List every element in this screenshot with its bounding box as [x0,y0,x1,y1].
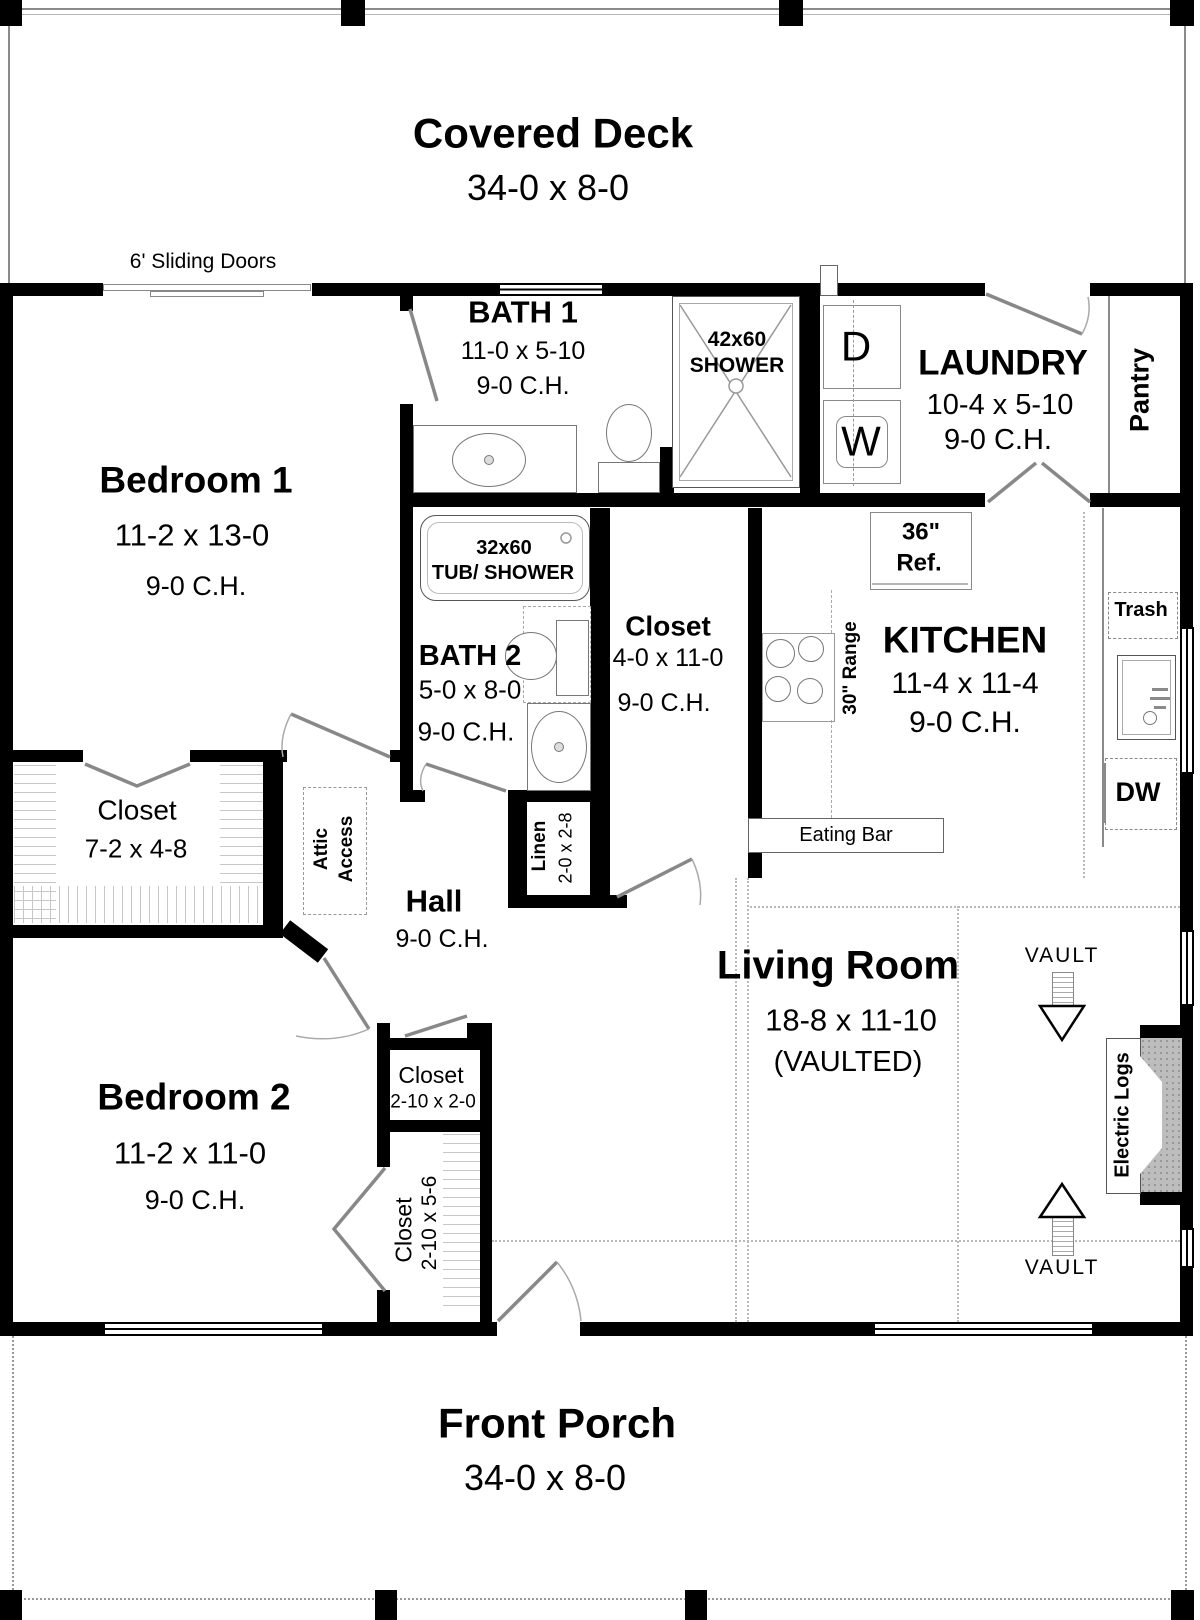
closet-tall-dims: 2-10 x 5-6 [418,1176,442,1271]
wall-bottom [1090,1322,1193,1336]
bath2-ceiling: 9-0 C.H. [418,717,515,746]
sink-drain [484,455,494,465]
wall-closet-small-top [388,1038,480,1050]
wall-linen-bottom [508,895,627,908]
deck-post [779,0,803,26]
porch-dims: 34-0 x 8-0 [464,1458,626,1498]
pantry-name: Pantry [1125,348,1156,432]
laundry-name: LAUNDRY [918,343,1088,382]
deck-post [1170,0,1194,26]
dishwasher-edge [1103,763,1106,823]
hall-closet-ceiling: 9-0 C.H. [617,689,710,717]
wall-living-left [480,1023,492,1322]
vault-arrow-head-up [1040,1184,1084,1217]
wall-linen-left [508,790,527,908]
vault-line [1083,512,1085,878]
wall-closet-divider [388,1120,480,1132]
toilet-bowl [606,404,652,462]
bedroom2-ceiling: 9-0 C.H. [145,1185,246,1215]
window [1180,930,1194,1006]
faucet [1152,688,1168,691]
laundry-bifold-door [988,463,1036,502]
porch-edge [12,1336,14,1598]
closet-tall-name: Closet [391,1197,418,1262]
door-arc [296,1029,369,1039]
shower-label: SHOWER [690,354,785,378]
bath2-dims: 5-0 x 8-0 [419,675,522,704]
bath1-door-leaf [410,309,437,401]
wall-bed1-bottom [190,750,287,762]
dryer-label: D [841,322,871,369]
wall-closet-bottom [0,925,283,938]
wall-linen-top [508,790,590,802]
wall-bed1-bottom [390,750,413,762]
deck-edge-top [8,8,1186,10]
angled-wall [285,927,323,956]
deck-edge-right [1184,8,1186,283]
deck-edge-top-inner [8,14,1186,15]
counter-edge [831,590,832,633]
toilet-tank [598,462,660,493]
wall-top [600,283,985,296]
sliding-doors-label: 6' Sliding Doors [130,250,276,274]
wall-corner [467,1023,492,1038]
bedroom2-name: Bedroom 2 [97,1076,290,1117]
deck-title: Covered Deck [413,109,693,156]
wall-bottom [320,1322,497,1336]
wall-top [0,283,103,296]
wall-bath2-closet [590,508,610,908]
porch-edge [13,1598,1186,1600]
dishwasher-label: DW [1116,777,1161,807]
vault-arrow-head-down [1040,1006,1084,1040]
door-arc [557,1262,581,1321]
wall-bath2-stub [400,790,425,802]
bedroom2-dims: 11-2 x 11-0 [114,1137,266,1172]
refrigerator-line [872,583,968,585]
deck-post [341,0,365,26]
closet-small-door-leaf [405,1016,467,1036]
bedroom1-door-leaf [291,714,390,757]
laundry-bifold-door [1042,463,1090,502]
deck-dims: 34-0 x 8-0 [467,168,629,208]
dryer-vent [820,265,838,296]
burner [765,676,791,702]
sliding-door-panel [150,291,264,297]
tub-size: 32x60 [476,537,532,559]
wall-bath-divider [400,493,985,507]
living-name: Living Room [717,944,959,989]
counter-edge [831,720,832,818]
closet-tall-doors [334,1168,385,1291]
floor-plan: Covered Deck 34-0 x 8-0 6' Sliding Doors… [0,0,1200,1620]
kitchen-dims: 11-4 x 11-4 [891,667,1038,701]
eating-bar-label: Eating Bar [799,824,892,846]
range-label: 30" Range [840,621,862,715]
hall-closet-door-leaf [617,859,692,897]
laundry-dims: 10-4 x 5-10 [927,389,1074,421]
hall-closet-dims: 4-0 x 11-0 [613,644,724,672]
pantry-divider [1108,296,1110,493]
trash-label: Trash [1114,599,1167,621]
fridge-size: 36" [902,520,940,547]
bedroom1-name: Bedroom 1 [99,459,292,500]
hall-closet-name: Closet [625,610,711,641]
porch-post [375,1590,397,1620]
wall-bottom [0,1322,103,1336]
wall-bed1-right [400,296,413,311]
window [1180,627,1194,774]
deck-post [0,0,22,26]
laundry-door-leaf [986,294,1082,334]
bath1-dims: 11-0 x 5-10 [461,337,586,365]
wall-bottom [580,1322,873,1336]
vault-label-bottom: VAULT [1025,1256,1100,1280]
burner [797,678,823,704]
bedroom1-ceiling: 9-0 C.H. [146,571,247,601]
shower-size: 42x60 [708,328,766,352]
linen-name: Linen [529,821,551,872]
laundry-ceiling: 9-0 C.H. [944,424,1052,456]
burner [766,639,795,668]
closet-shelf-hatch [443,1134,480,1310]
bedroom2-door-leaf [324,958,369,1029]
living-note: (VAULTED) [774,1046,923,1078]
faucet [1150,697,1170,700]
living-dims: 18-8 x 11-10 [765,1004,937,1039]
bath1-ceiling: 9-0 C.H. [476,372,569,400]
wall-bed1-bottom [0,750,83,762]
burner [798,636,824,662]
closet-double-doors [85,764,190,786]
kitchen-ceiling: 9-0 C.H. [909,706,1021,740]
bed1-closet-dims: 7-2 x 4-8 [85,834,188,863]
bedroom1-dims: 11-2 x 13-0 [115,519,270,554]
door-arc [692,859,701,905]
kitchen-name: KITCHEN [883,619,1047,660]
vault-line [492,1240,1180,1242]
linen-dims: 2-0 x 2-8 [556,812,577,883]
closet-shelf-hatch [220,765,263,885]
bath1-name: BATH 1 [468,296,578,331]
door-arc [421,764,426,791]
attic-access-line2: Access [336,816,358,883]
faucet [1154,706,1166,709]
fireplace-band [1140,1025,1182,1038]
faucet-knob [1143,711,1157,725]
wall-top [1090,283,1193,296]
fireplace-label: Electric Logs [1112,1052,1135,1178]
vault-arrow-shaft [1052,972,1074,1010]
hall-name: Hall [406,885,463,920]
porch-post [0,1590,22,1620]
fridge-label: Ref. [896,551,941,578]
window [873,1322,1094,1336]
attic-access-line1: Attic [311,828,333,870]
closet-small-name: Closet [398,1063,463,1089]
porch-post [1171,1590,1194,1620]
window [103,1322,324,1336]
hall-ceiling: 9-0 C.H. [395,925,488,953]
wall-closet-right [263,762,283,925]
vault-label-top: VAULT [1025,944,1100,968]
sliding-door [103,284,311,291]
tub-label: TUB/ SHOWER [432,562,574,584]
wall-bath-divider [1090,493,1180,507]
fireplace-body [1140,1038,1182,1192]
wall-shower-laundry [800,296,820,493]
wall-bed1-right [400,404,413,802]
fireplace-band [1140,1192,1182,1205]
wall-left [0,283,13,1336]
window [1180,1228,1194,1268]
bed1-closet-name: Closet [97,794,176,825]
front-door-leaf [498,1262,557,1321]
washer-label: W [841,417,881,464]
porch-edge [1185,1336,1187,1598]
bath2-door-leaf [426,764,506,791]
vault-arrow-shaft [1052,1216,1074,1256]
sink-drain [554,742,564,752]
deck-edge-left [8,8,10,283]
closet-shelf-hatch [14,886,263,923]
door-arc [1082,297,1089,334]
porch-post [685,1590,707,1620]
closet-small-dims: 2-10 x 2-0 [390,1091,476,1112]
porch-title: Front Porch [438,1399,676,1446]
bath2-name: BATH 2 [419,640,522,672]
vault-line [750,906,1180,908]
wall-bed2-right [377,1290,390,1322]
toilet-tank [556,620,589,696]
